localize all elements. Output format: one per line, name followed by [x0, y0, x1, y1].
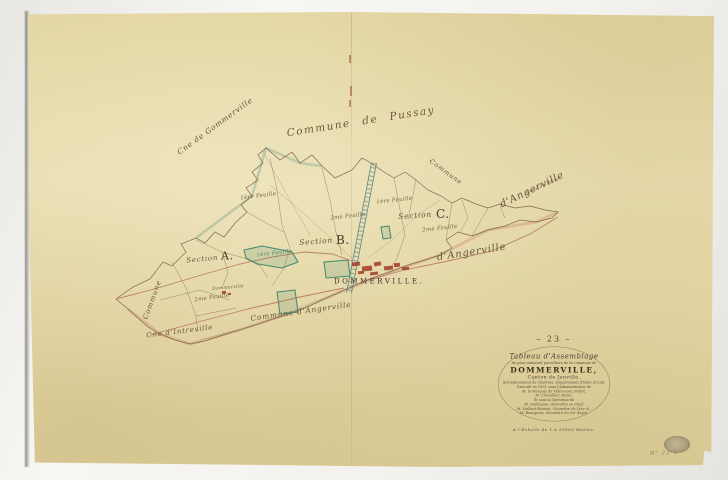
map-label-14: C.: [436, 208, 450, 220]
map-label-12: B.: [336, 234, 350, 246]
pencil-inventory-number: N° 23-1: [650, 449, 678, 456]
map-linework: [0, 0, 728, 480]
cartouche-admin-lines: Arrondissement de Chartres, Département …: [503, 381, 606, 416]
cartouche-title: Tableau d'Assemblage: [509, 353, 598, 361]
cartouche-admin-line-7: M. Bourgeois, Géomètre du 1er degré.: [503, 411, 606, 415]
cartouche-ellipse: Tableau d'Assemblage du plan cadastral p…: [498, 347, 610, 422]
cartouche-scale: A l'Echelle de 1 à 10000 Mètres.: [494, 428, 614, 433]
cartouche-subtitle: du plan cadastral parcellaire de la comm…: [512, 361, 597, 365]
map-label-22: DOMMERVILLE.: [334, 278, 424, 285]
cartouche-canton: Canton de Janville.: [528, 375, 581, 380]
map-label-10: A.: [221, 251, 233, 262]
cartouche-commune-name: DOMMERVILLE,: [510, 366, 598, 375]
sheet-number: – 23 –: [494, 334, 614, 344]
scanned-map-page: Commune de PussayCne de GommervilleCommu…: [0, 0, 728, 480]
title-cartouche: – 23 – Tableau d'Assemblage du plan cada…: [494, 334, 614, 432]
